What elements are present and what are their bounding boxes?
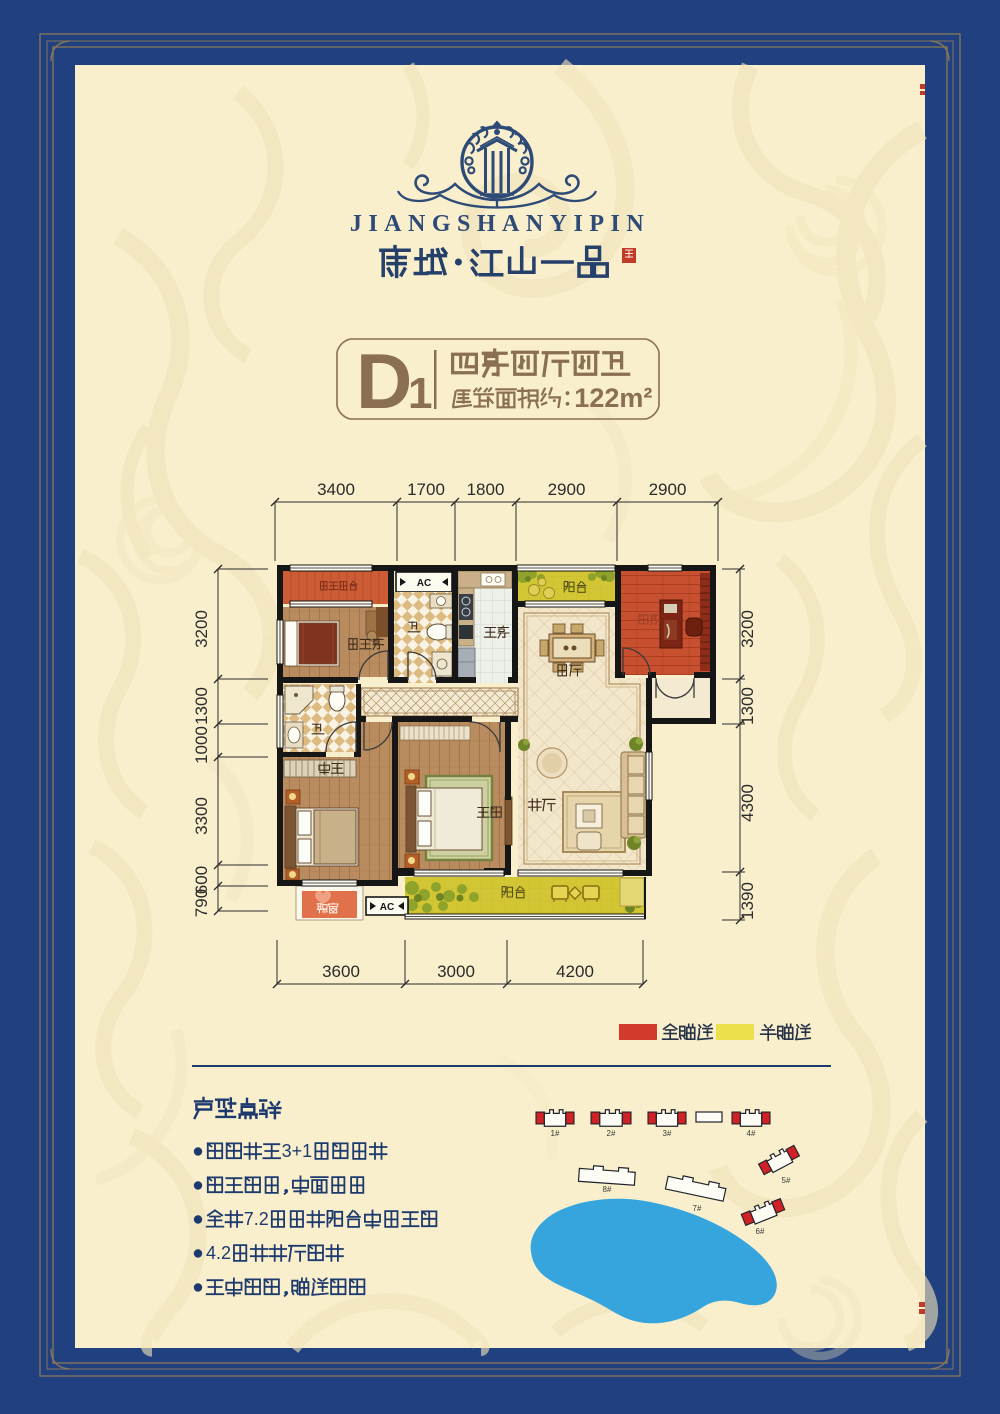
svg-text:790: 790 — [192, 889, 211, 917]
svg-text:6#: 6# — [756, 1227, 765, 1236]
svg-text:1390: 1390 — [738, 882, 757, 920]
svg-text:3#: 3# — [663, 1129, 672, 1138]
svg-text:1000: 1000 — [192, 726, 211, 764]
svg-text:AC: AC — [417, 578, 431, 589]
svg-text:1#: 1# — [551, 1129, 560, 1138]
svg-text:3+1: 3+1 — [282, 1141, 313, 1161]
svg-text:5#: 5# — [782, 1176, 791, 1185]
svg-text:2#: 2# — [607, 1129, 616, 1138]
svg-text:4.2: 4.2 — [206, 1243, 231, 1263]
svg-text:1800: 1800 — [467, 480, 505, 499]
svg-text:D: D — [356, 337, 412, 425]
svg-text:4200: 4200 — [556, 962, 594, 981]
svg-text:1700: 1700 — [407, 480, 445, 499]
svg-text:4#: 4# — [747, 1129, 756, 1138]
svg-text:2900: 2900 — [649, 480, 687, 499]
svg-text:AC: AC — [380, 902, 394, 913]
svg-text:3600: 3600 — [322, 962, 360, 981]
svg-text:3400: 3400 — [317, 480, 355, 499]
svg-text:4300: 4300 — [738, 784, 757, 822]
svg-text:7#: 7# — [693, 1204, 702, 1213]
svg-text:1: 1 — [408, 369, 432, 418]
svg-text:3000: 3000 — [437, 962, 475, 981]
svg-text:3300: 3300 — [192, 797, 211, 835]
svg-text:JIANGSHANYIPIN: JIANGSHANYIPIN — [350, 211, 650, 237]
svg-text:1300: 1300 — [192, 687, 211, 725]
svg-text:1300: 1300 — [738, 687, 757, 725]
svg-text:8#: 8# — [603, 1185, 612, 1194]
svg-text:7.2: 7.2 — [244, 1209, 269, 1229]
svg-text:3200: 3200 — [192, 610, 211, 648]
svg-text:122m²: 122m² — [574, 383, 652, 413]
svg-text:3200: 3200 — [738, 610, 757, 648]
svg-text:2900: 2900 — [548, 480, 586, 499]
